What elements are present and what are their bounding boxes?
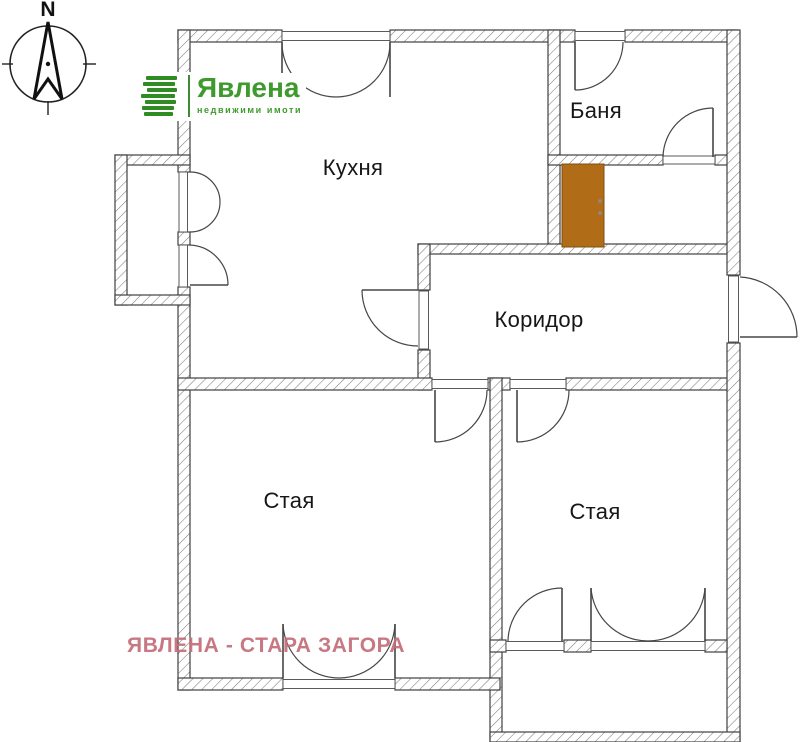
agency-watermark: ЯВЛЕНА - СТАРА ЗАГОРА	[127, 634, 405, 658]
logo-brand: Явлена	[197, 75, 302, 101]
entrance-door	[562, 164, 604, 247]
compass-north-label: N	[40, 0, 55, 22]
logo-stripes-icon	[140, 75, 182, 119]
logo: Явлена недвижими имоти	[136, 73, 306, 121]
floor-plan: N Явлена недвижими имоти Кухня Баня Кори…	[0, 0, 800, 742]
room-label-room-left: Стая	[263, 488, 314, 514]
window-sills	[179, 32, 739, 689]
logo-tagline: недвижими имоти	[197, 105, 302, 115]
compass-icon	[2, 22, 96, 115]
logo-divider	[188, 75, 190, 117]
room-label-room-right: Стая	[569, 499, 620, 525]
room-label-bathroom: Баня	[570, 98, 622, 124]
room-label-kitchen: Кухня	[323, 155, 383, 181]
room-label-corridor: Коридор	[495, 307, 584, 333]
floor-plan-drawing	[0, 0, 800, 742]
